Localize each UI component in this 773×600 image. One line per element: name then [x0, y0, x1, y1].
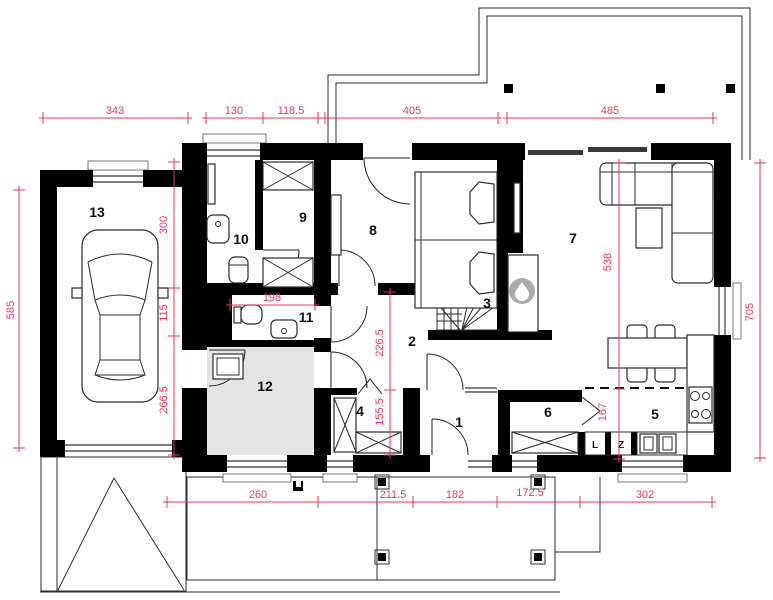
- dishwasher-label: Z: [618, 440, 624, 451]
- toilet: [241, 305, 262, 324]
- fireplace: [508, 255, 538, 332]
- room-label-utility: 12: [257, 378, 273, 394]
- dim-int-167: 167: [597, 403, 609, 421]
- utility-door: [331, 352, 367, 388]
- terrace-post: [504, 84, 513, 93]
- bedroom-terrace-door: [364, 158, 410, 204]
- closet-bifold-door: [358, 379, 382, 394]
- dining-set: [608, 325, 687, 382]
- sliding-door-panel: [588, 147, 647, 152]
- room-label-bedroom: 8: [369, 222, 377, 238]
- wardrobe-hall9-bottom: [263, 258, 313, 287]
- garage-window: [93, 176, 143, 182]
- wardrobe-pantry6: [512, 432, 578, 453]
- interior-glazing: [465, 388, 497, 392]
- floor-plan-drawing: 343 130 118.5 405 485 260 211.5 182 172.…: [0, 0, 773, 600]
- room-label-hall9: 9: [299, 209, 307, 225]
- utility-window: [227, 461, 287, 467]
- dim-int-266: 266.5: [158, 386, 170, 414]
- dim-int-300: 300: [158, 216, 170, 234]
- room-label-hall2: 2: [408, 333, 416, 349]
- terrace-post: [726, 84, 735, 93]
- fridge-label: L: [592, 440, 598, 451]
- dim-int-155: 155.5: [374, 398, 386, 426]
- downspout: [293, 481, 303, 491]
- bathroom-window: [207, 150, 260, 156]
- dim-int-198: 198: [263, 292, 281, 304]
- closet-window: [327, 461, 353, 467]
- dim-top-4: 405: [403, 105, 421, 117]
- wc11-fixtures: [234, 305, 297, 338]
- room-label-living: 7: [569, 230, 577, 246]
- tv-panel: [514, 183, 520, 233]
- cabinet: [659, 434, 676, 453]
- toilet: [229, 257, 248, 283]
- sliding-door-panel: [528, 150, 583, 155]
- terrace-post: [656, 84, 665, 93]
- dim-int-226: 226.5: [374, 329, 386, 357]
- dim-top-3: 118.5: [278, 105, 305, 117]
- dim-bottom-4: 172.5: [516, 487, 544, 499]
- dining-table: [608, 338, 687, 368]
- room-label-garage: 13: [89, 204, 105, 220]
- hall-entry-door: [427, 354, 463, 390]
- garage-door-opening: [65, 445, 172, 451]
- room-label-kitchen: 5: [651, 406, 659, 422]
- sink-cabinet: [640, 434, 657, 453]
- dim-top-2: 130: [225, 105, 243, 117]
- wardrobe-closet4-left: [334, 398, 356, 452]
- dim-top-garage: 343: [106, 105, 124, 117]
- radiator: [208, 164, 215, 204]
- wc-door: [331, 306, 367, 342]
- terrace-outline: [328, 8, 750, 160]
- dim-top-5: 485: [601, 105, 619, 117]
- dim-bottom-5: 302: [636, 489, 654, 501]
- car: [72, 230, 168, 402]
- entry-sidelight: [468, 461, 492, 467]
- kitchen-window: [622, 461, 683, 467]
- wardrobe-hall9-top: [263, 162, 313, 190]
- room-label-entry: 1: [455, 414, 463, 430]
- bed: [415, 172, 497, 308]
- dim-right-705: 705: [744, 303, 756, 321]
- sink: [207, 215, 229, 243]
- dresser: [331, 195, 341, 255]
- bathroom10-fixtures: [207, 164, 248, 283]
- pantry-window: [512, 461, 537, 467]
- bedroom8-door: [339, 250, 375, 286]
- driveway: [41, 457, 186, 591]
- coffee-table: [636, 208, 662, 248]
- dim-bottom-2: 211.5: [380, 489, 407, 501]
- pillow: [470, 182, 494, 224]
- floor-plan-page: 343 130 118.5 405 485 260 211.5 182 172.…: [0, 0, 773, 600]
- dim-left-585: 585: [5, 301, 17, 319]
- utility-appliance: [213, 354, 243, 379]
- living-side-window: [719, 287, 725, 335]
- room-label-closet: 4: [356, 403, 364, 419]
- dim-int-538: 538: [602, 253, 614, 271]
- toilet-tank: [234, 307, 241, 323]
- pillow: [470, 252, 494, 294]
- room-label-wc: 11: [299, 309, 314, 325]
- wardrobe-closet4-bottom: [356, 432, 401, 453]
- dim-bottom-3: 182: [446, 489, 464, 501]
- room-label-bathroom: 10: [233, 231, 249, 247]
- room-label-pantry: 6: [544, 404, 552, 420]
- stove: [689, 387, 712, 423]
- dim-int-115: 115: [158, 304, 170, 322]
- dim-bottom-1: 260: [249, 489, 267, 501]
- room-label-stairs: 3: [483, 295, 491, 311]
